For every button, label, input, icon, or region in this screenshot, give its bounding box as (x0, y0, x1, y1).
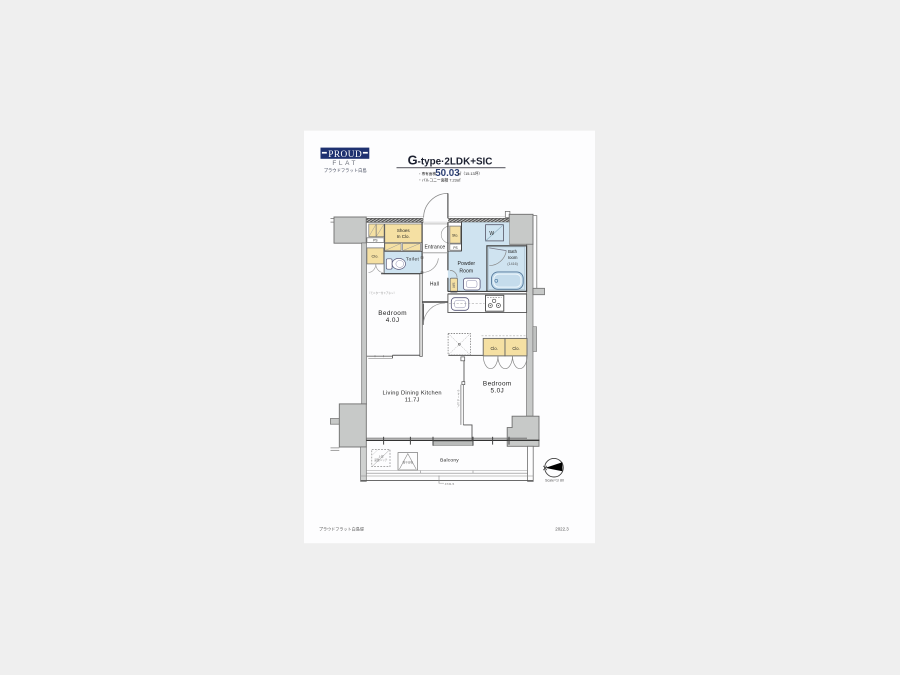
svg-text:W: W (489, 231, 494, 237)
svg-text:Bedroom: Bedroom (378, 310, 407, 317)
svg-text:PS: PS (453, 246, 457, 250)
svg-text:PS: PS (373, 238, 377, 242)
svg-text:上部: 上部 (378, 455, 384, 459)
svg-text:Clo.: Clo. (490, 346, 497, 351)
svg-text:Bath: Bath (508, 249, 517, 254)
svg-text:プラウドフラット白島: プラウドフラット白島 (324, 167, 368, 174)
svg-text:50.03: 50.03 (435, 168, 460, 179)
svg-text:2022.3: 2022.3 (555, 526, 569, 531)
svg-text:4.0J: 4.0J (386, 317, 400, 324)
svg-text:給湯: 給湯 (452, 282, 456, 289)
svg-text:・専有面積: ・専有面積 (418, 171, 436, 176)
svg-text:Room: Room (459, 268, 473, 274)
svg-text:In Clo.: In Clo. (397, 234, 410, 239)
svg-text:Clo.: Clo. (372, 254, 379, 259)
svg-text:物干金物: 物干金物 (403, 461, 414, 465)
svg-text:PROUD: PROUD (328, 150, 362, 160)
svg-text:ウォールドア: ウォールドア (456, 389, 460, 408)
svg-text:room: room (508, 255, 518, 260)
svg-text:Living Dining Kitchen: Living Dining Kitchen (382, 390, 441, 396)
svg-text:Toilet: Toilet (406, 256, 420, 261)
svg-text:(1416): (1416) (507, 262, 517, 266)
svg-text:プラウドフラット白島堤: プラウドフラット白島堤 (319, 525, 364, 531)
svg-text:〔モニター付ドアホン〕: 〔モニター付ドアホン〕 (368, 291, 397, 295)
svg-text:Clo.: Clo. (512, 346, 519, 351)
svg-text:Powder: Powder (458, 261, 476, 267)
svg-text:Shoes: Shoes (397, 228, 411, 233)
svg-text:Sto.: Sto. (452, 234, 458, 238)
svg-text:11.7J: 11.7J (405, 398, 420, 404)
svg-text:Hall: Hall (430, 281, 439, 287)
svg-text:5.0J: 5.0J (490, 388, 504, 395)
svg-text:Bedroom: Bedroom (483, 381, 512, 388)
svg-text:4731.5: 4731.5 (445, 482, 455, 486)
svg-text:Balcony: Balcony (440, 458, 459, 464)
svg-text:Scale=1/ 80: Scale=1/ 80 (545, 479, 564, 483)
svg-text:Entrance: Entrance (424, 244, 445, 250)
svg-text:㎡（15.13坪）: ㎡（15.13坪） (458, 171, 483, 176)
svg-text:・バルコニー面積 7.23㎡: ・バルコニー面積 7.23㎡ (418, 178, 461, 183)
svg-text:避難ハッチ: 避難ハッチ (374, 458, 387, 462)
svg-text:FLAT: FLAT (332, 160, 358, 167)
